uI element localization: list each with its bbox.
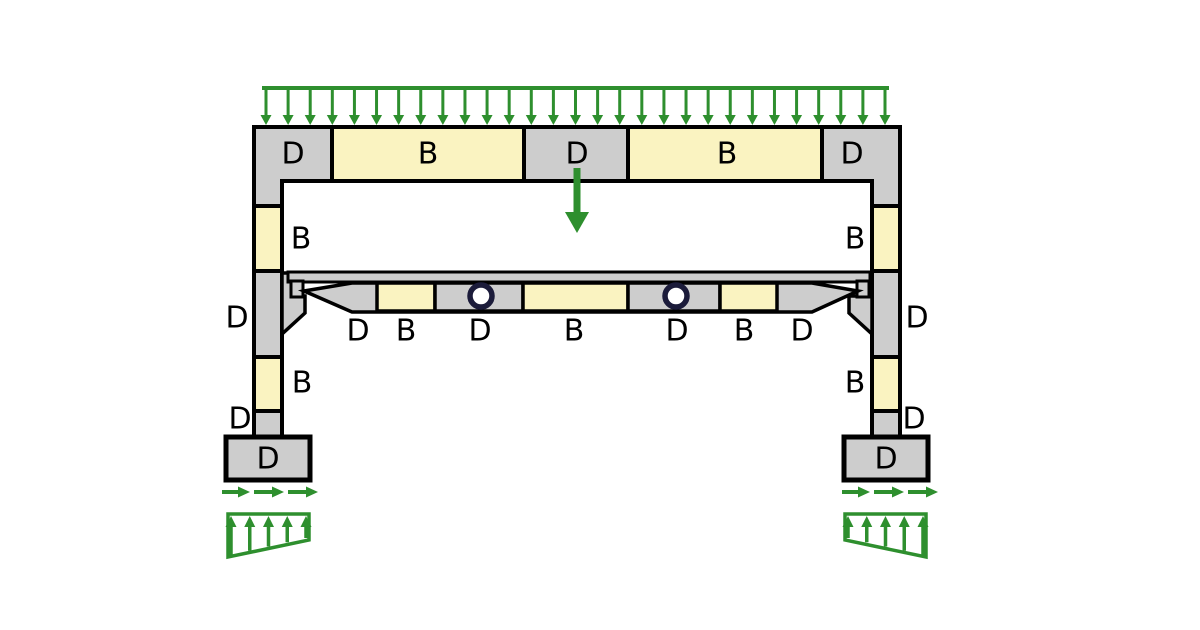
- down-arrowhead-icon: [327, 115, 338, 125]
- left-column-d-middle: [254, 271, 282, 357]
- label-left-column-d-middle: D: [225, 301, 248, 336]
- label-right-column-d-base: D: [902, 402, 925, 437]
- down-arrowhead-icon: [592, 115, 603, 125]
- down-arrowhead-icon: [725, 115, 736, 125]
- down-arrowhead-icon: [636, 115, 647, 125]
- label-left-footing-d: D: [256, 442, 279, 477]
- right-arrowhead-icon: [858, 487, 870, 498]
- down-arrowhead-icon: [681, 115, 692, 125]
- lower-beam-b-1: [377, 283, 435, 311]
- up-arrowhead-icon: [861, 516, 872, 527]
- down-arrowhead-icon: [437, 115, 448, 125]
- down-arrowhead-icon: [703, 115, 714, 125]
- down-arrowhead-icon: [349, 115, 360, 125]
- down-arrowhead-icon: [813, 115, 824, 125]
- down-arrowhead-icon: [570, 115, 581, 125]
- label-top-beam-d2: D: [565, 137, 588, 172]
- down-arrowhead-icon: [614, 115, 625, 125]
- left-column-d-base: [254, 411, 282, 437]
- down-arrowhead-icon: [548, 115, 559, 125]
- down-arrowhead-icon: [880, 115, 891, 125]
- label-right-footing-d: D: [874, 442, 897, 477]
- up-arrowhead-icon: [880, 516, 891, 527]
- down-arrowhead-icon: [857, 115, 868, 125]
- duct-hole-icon: [470, 285, 492, 307]
- down-arrowhead-icon: [747, 115, 758, 125]
- down-arrowhead-icon: [482, 115, 493, 125]
- lower-beam-left-nib: [291, 281, 303, 297]
- label-lower-beam-d3: D: [665, 314, 688, 349]
- up-arrowhead-icon: [899, 516, 910, 527]
- left-base-shear-arrows: [222, 487, 318, 498]
- label-lower-beam-d2: D: [468, 314, 491, 349]
- down-arrowhead-icon: [283, 115, 294, 125]
- down-arrowhead-icon: [371, 115, 382, 125]
- left-column-b-lower: [254, 357, 282, 411]
- distributed-load-arrows: [261, 88, 891, 125]
- label-top-beam-b2: B: [717, 137, 738, 172]
- right-base-shear-arrows: [842, 487, 938, 498]
- right-arrowhead-icon: [926, 487, 938, 498]
- down-arrowhead-icon: [305, 115, 316, 125]
- label-left-column-b-lower: B: [292, 366, 313, 401]
- down-arrowhead-icon: [504, 115, 515, 125]
- right-column-b-lower: [872, 357, 900, 411]
- label-lower-beam-d1: D: [346, 314, 369, 349]
- point-load-arrowhead-icon: [565, 212, 589, 233]
- frame-structure-svg: D B D B D B D B D D B D B D D D B D B D …: [0, 0, 1200, 630]
- down-arrowhead-icon: [769, 115, 780, 125]
- down-arrowhead-icon: [415, 115, 426, 125]
- label-top-beam-b1: B: [418, 137, 439, 172]
- label-left-column-d-base: D: [228, 402, 251, 437]
- left-soil-pressure-diagram: [226, 514, 312, 557]
- right-arrowhead-icon: [272, 487, 284, 498]
- label-right-column-b-lower: B: [845, 366, 866, 401]
- down-arrowhead-icon: [526, 115, 537, 125]
- right-arrowhead-icon: [306, 487, 318, 498]
- up-arrowhead-icon: [282, 516, 293, 527]
- down-arrowhead-icon: [791, 115, 802, 125]
- lower-beam: [288, 272, 870, 312]
- left-column-b-upper: [254, 206, 282, 271]
- label-lower-beam-b1: B: [396, 314, 417, 349]
- bd-region-frame-diagram: D B D B D B D B D D B D B D D D B D B D …: [0, 0, 1200, 630]
- label-right-column-d-middle: D: [905, 301, 928, 336]
- down-arrowhead-icon: [393, 115, 404, 125]
- label-left-column-b-upper: B: [291, 222, 312, 257]
- down-arrowhead-icon: [261, 115, 272, 125]
- lower-beam-top-flange: [288, 272, 870, 282]
- down-arrowhead-icon: [459, 115, 470, 125]
- label-right-column-b-upper: B: [845, 222, 866, 257]
- lower-beam-b-2: [523, 283, 628, 311]
- up-arrowhead-icon: [263, 516, 274, 527]
- up-arrowhead-icon: [244, 516, 255, 527]
- right-arrowhead-icon: [892, 487, 904, 498]
- label-lower-beam-b3: B: [734, 314, 755, 349]
- label-lower-beam-d4: D: [790, 314, 813, 349]
- label-lower-beam-b2: B: [564, 314, 585, 349]
- down-arrowhead-icon: [658, 115, 669, 125]
- down-arrowhead-icon: [835, 115, 846, 125]
- right-column-d-middle: [872, 271, 900, 357]
- right-column-d-base: [872, 411, 900, 437]
- lower-beam-right-nib: [857, 281, 869, 297]
- right-soil-pressure-diagram: [843, 514, 929, 557]
- duct-hole-icon: [665, 285, 687, 307]
- right-column-b-upper: [872, 206, 900, 271]
- label-top-beam-d3: D: [840, 137, 863, 172]
- lower-beam-b-3: [720, 283, 777, 311]
- label-top-beam-d1: D: [281, 137, 304, 172]
- right-arrowhead-icon: [238, 487, 250, 498]
